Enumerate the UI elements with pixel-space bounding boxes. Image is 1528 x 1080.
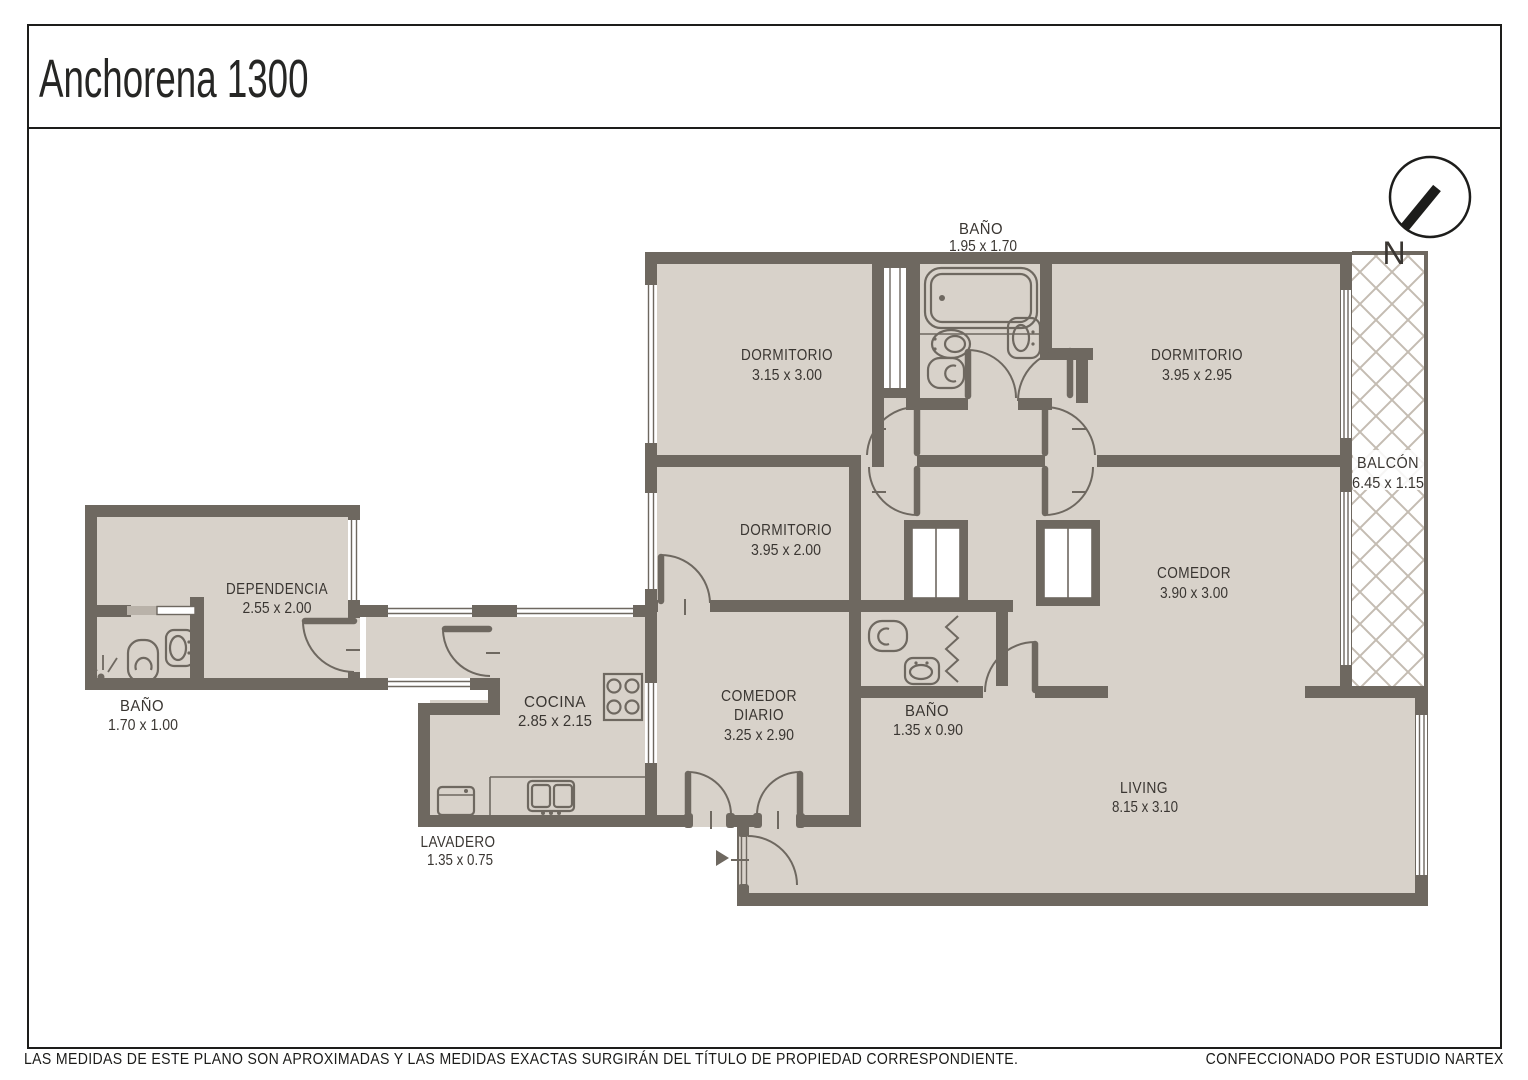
label-bano-servicio: BAÑO: [905, 700, 949, 720]
label-dependencia: DEPENDENCIA: [226, 581, 328, 598]
label-comedor-diario-1: COMEDOR: [721, 688, 797, 705]
entrance-arrow-icon: [716, 850, 729, 866]
credit-text: CONFECCIONADO POR ESTUDIO NARTEX: [1206, 1051, 1504, 1069]
dims-balcon: 6.45 x 1.15: [1352, 475, 1424, 492]
label-bano-dependencia: BAÑO: [120, 695, 164, 715]
dims-bano-principal: 1.95 x 1.70: [949, 238, 1017, 255]
label-lavadero: LAVADERO: [421, 834, 496, 851]
label-comedor: COMEDOR: [1157, 565, 1231, 582]
label-comedor-diario-2: DIARIO: [734, 707, 784, 724]
disclaimer-text: LAS MEDIDAS DE ESTE PLANO SON APROXIMADA…: [24, 1051, 1018, 1069]
label-living: LIVING: [1120, 780, 1168, 797]
label-dormitorio-2: DORMITORIO: [1151, 347, 1243, 364]
dims-dependencia: 2.55 x 2.00: [243, 600, 312, 617]
dims-comedor: 3.90 x 3.00: [1160, 585, 1228, 602]
dims-cocina: 2.85 x 2.15: [518, 713, 592, 730]
dims-dormitorio-2: 3.95 x 2.95: [1162, 367, 1232, 384]
dims-dormitorio-3: 3.95 x 2.00: [751, 542, 821, 559]
label-balcon: BALCÓN: [1357, 453, 1419, 472]
dims-comedor-diario: 3.25 x 2.90: [724, 727, 794, 744]
stove: [604, 674, 642, 720]
floor-plan: N BAÑO 1.95 x 1.70 DORMITORIO 3.15 x 3.0…: [0, 0, 1528, 1080]
label-cocina: COCINA: [524, 694, 586, 711]
floorplan-page: Anchorena 1300: [0, 0, 1528, 1080]
dims-dormitorio-1: 3.15 x 3.00: [752, 367, 822, 384]
dims-lavadero: 1.35 x 0.75: [427, 852, 493, 869]
compass-north-label: N: [1382, 235, 1405, 271]
label-dormitorio-3: DORMITORIO: [740, 522, 832, 539]
dims-bano-dependencia: 1.70 x 1.00: [108, 717, 178, 734]
label-bano-principal: BAÑO: [959, 218, 1003, 238]
dims-living: 8.15 x 3.10: [1112, 799, 1178, 816]
label-dormitorio-1: DORMITORIO: [741, 347, 833, 364]
dims-bano-servicio: 1.35 x 0.90: [893, 722, 963, 739]
